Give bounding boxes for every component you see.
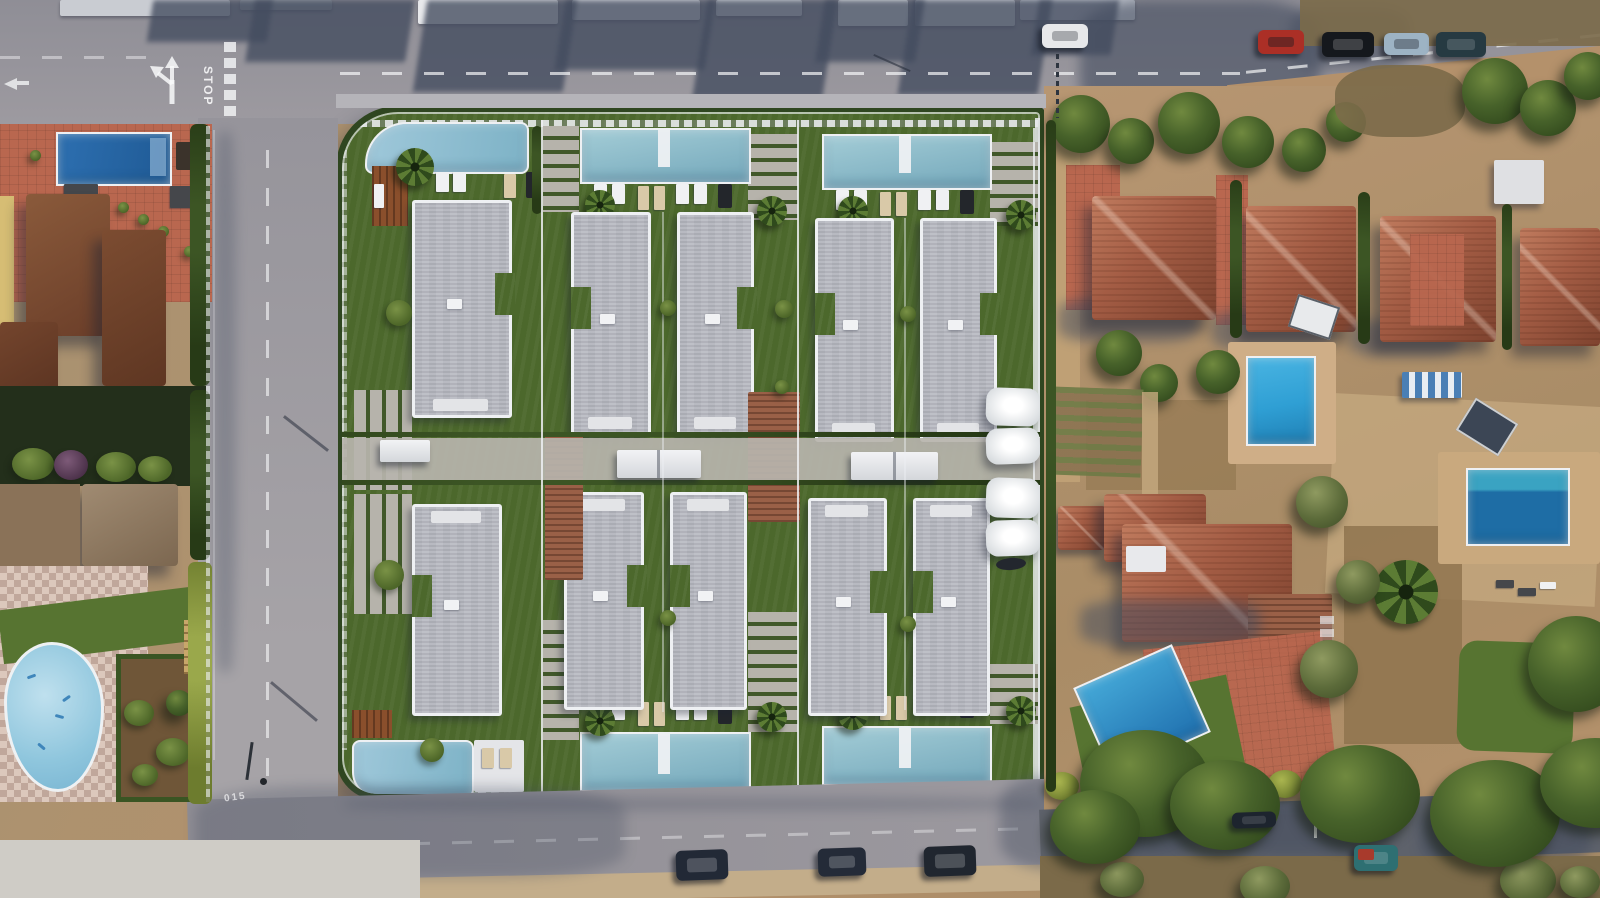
pool-divider-bridge xyxy=(899,726,911,768)
garden-bush xyxy=(660,300,676,316)
unit-divider-wall xyxy=(541,120,543,796)
timber-deck xyxy=(352,710,392,738)
roof-terrace xyxy=(687,499,729,511)
car-windshield xyxy=(1447,39,1475,50)
left-turn-arrow-marking xyxy=(4,78,17,90)
red-cargo xyxy=(1358,849,1374,860)
parked-car-silver xyxy=(1384,33,1429,55)
fence-line xyxy=(1056,54,1059,118)
villa-roof xyxy=(102,230,166,386)
pool-motif xyxy=(55,714,64,719)
garden-bush xyxy=(138,456,172,482)
sun-lounger xyxy=(1496,580,1514,588)
potted-plant xyxy=(138,214,149,225)
garden-bush xyxy=(374,560,404,590)
lane-dash-line xyxy=(0,56,150,59)
palm-tree xyxy=(585,706,615,736)
plot-bush xyxy=(132,764,158,786)
lamp-head xyxy=(260,778,267,785)
canopy-tree xyxy=(1300,745,1420,843)
big-palm xyxy=(1374,560,1438,624)
parked-car-dark xyxy=(675,849,728,881)
entrance-canopy xyxy=(617,450,701,478)
brush-tree xyxy=(1240,866,1290,898)
car-in-shade xyxy=(1232,811,1277,829)
plot-bush xyxy=(156,738,190,766)
townhouse-roof xyxy=(815,218,894,442)
sun-lounger xyxy=(453,172,466,192)
roof-notch xyxy=(870,571,890,613)
striped-awning xyxy=(1402,372,1462,398)
shed-roof xyxy=(1058,506,1106,550)
parked-car-teal xyxy=(1436,32,1486,57)
pool-motif xyxy=(37,742,46,750)
roof-terrace xyxy=(694,417,736,429)
garden-bush xyxy=(775,300,793,318)
building-shadow xyxy=(692,0,838,98)
sun-lounger xyxy=(654,186,665,210)
car-windshield xyxy=(1333,39,1362,50)
potted-plant xyxy=(118,202,129,213)
roadside-tree xyxy=(1222,116,1274,168)
outdoor-sofa xyxy=(374,184,384,208)
villa-roof xyxy=(26,194,110,336)
car-windshield xyxy=(1394,39,1419,49)
villa-roof xyxy=(1092,196,1216,320)
roof-vent xyxy=(600,314,615,324)
roof-notch xyxy=(815,293,835,335)
roof-notch xyxy=(571,287,591,329)
sun-lounger xyxy=(436,172,449,192)
sun-lounger xyxy=(694,184,707,204)
dirt-yard xyxy=(0,484,80,568)
car-windshield xyxy=(687,858,717,872)
roof-notch xyxy=(670,565,690,607)
roof-terrace xyxy=(930,505,972,517)
pool-divider-bridge xyxy=(899,134,911,173)
unit-divider-wall xyxy=(797,120,799,796)
roadside-tree xyxy=(1052,95,1110,153)
parked-object xyxy=(996,557,1027,571)
villa-terrace xyxy=(1410,234,1464,326)
building-shadow xyxy=(245,0,415,62)
roadside-tree xyxy=(1462,58,1528,124)
roof-vent xyxy=(444,600,459,610)
parked-car-dark xyxy=(923,845,976,877)
townhouse-roof xyxy=(808,498,887,716)
potted-plant xyxy=(30,150,41,161)
garden-bush xyxy=(420,738,444,762)
lane-fork-arrow-marking xyxy=(148,54,190,104)
white-terrace xyxy=(1126,546,1166,572)
sun-lounger xyxy=(482,748,494,768)
entrance-canopy xyxy=(380,440,430,462)
townhouse-roof xyxy=(412,200,512,418)
car-windshield xyxy=(1268,37,1294,48)
canopy-seam xyxy=(657,450,660,478)
villa-roof xyxy=(1520,228,1600,346)
olive-tree xyxy=(1336,560,1380,604)
roof-notch xyxy=(412,575,432,617)
building-shadow xyxy=(413,0,578,92)
palm-tree xyxy=(757,196,787,226)
garden-tree xyxy=(1096,330,1142,376)
sun-lounger xyxy=(504,174,516,198)
townhouse-development-block xyxy=(336,106,1046,800)
roof-vent xyxy=(948,320,963,330)
building-shadow xyxy=(554,0,715,70)
teal-vehicle xyxy=(1354,845,1398,871)
center-dash-line xyxy=(340,72,1240,75)
olive-tree xyxy=(1300,640,1358,698)
pool-steps xyxy=(150,138,166,176)
roof-vent xyxy=(593,591,608,601)
white-shed xyxy=(1494,160,1544,204)
brush-tree xyxy=(1100,862,1144,897)
pool-motif xyxy=(27,674,36,680)
sun-lounger xyxy=(936,190,949,210)
roof-vent xyxy=(705,314,720,324)
pool-divider-bridge xyxy=(658,732,670,774)
plot-bush xyxy=(124,700,154,726)
roof-notch xyxy=(737,287,757,329)
stop-road-marking: STOP xyxy=(201,66,215,106)
garden-bush xyxy=(775,380,789,394)
garden-bush xyxy=(900,616,916,632)
roof-vent xyxy=(836,597,851,607)
parked-car-white xyxy=(1042,24,1088,48)
palm-tree xyxy=(396,148,434,186)
sidewalk xyxy=(336,94,1046,108)
roof-terrace xyxy=(588,417,632,429)
dev-wall-shadow xyxy=(345,798,1045,810)
sun-lounger xyxy=(880,192,891,216)
sun-lounger xyxy=(500,748,512,768)
canopy-seam xyxy=(893,452,896,480)
canopy-tree xyxy=(1050,790,1140,864)
car-windshield xyxy=(1242,816,1267,824)
garden-bush xyxy=(386,300,412,326)
roof-terrace xyxy=(825,505,868,517)
palm-tree xyxy=(757,702,787,732)
villa-pool xyxy=(1246,356,1316,446)
shade-sail xyxy=(985,519,1040,557)
villa-roof xyxy=(82,484,178,566)
car-windshield xyxy=(935,854,965,868)
covered-pool xyxy=(1466,468,1570,546)
roof-vent xyxy=(447,299,462,309)
townhouse-roof xyxy=(913,498,990,716)
parked-car-red xyxy=(1258,30,1304,54)
roof-shadow xyxy=(1080,600,1260,646)
garden-bush xyxy=(54,450,88,480)
property-hedge xyxy=(1230,180,1242,338)
give-way-line xyxy=(224,42,236,120)
pale-pavement xyxy=(0,840,420,898)
roadside-tree xyxy=(1108,118,1154,164)
garden-tree xyxy=(1196,350,1240,394)
building-shadow xyxy=(897,0,1052,95)
townhouse-roof xyxy=(677,212,754,436)
roadside-tree xyxy=(1158,92,1220,154)
brush-tree xyxy=(1560,866,1600,898)
property-hedge xyxy=(1502,204,1512,350)
roof-notch xyxy=(495,273,515,315)
dry-brush xyxy=(1335,65,1465,137)
pool-divider-bridge xyxy=(658,128,670,167)
centre-hedge-line xyxy=(342,480,1042,485)
parked-car-black xyxy=(1322,32,1374,57)
roof-vent xyxy=(941,597,956,607)
roof-terrace xyxy=(581,499,625,511)
sun-lounger xyxy=(638,186,649,210)
townhouse-roof xyxy=(670,492,747,710)
garden-bush xyxy=(660,610,676,626)
unit-divider-wall xyxy=(662,212,664,712)
grass-paver-driveway xyxy=(354,494,412,614)
canopy-tree xyxy=(1170,760,1280,850)
roof-vent xyxy=(698,591,713,601)
parked-car-dark xyxy=(818,847,867,877)
centre-hedge-line xyxy=(342,432,1042,437)
hedge-shadow xyxy=(214,132,236,672)
property-hedge xyxy=(1358,192,1370,344)
unit-divider-wall xyxy=(904,218,906,710)
aerial-photo-scene: STOP 015 xyxy=(0,0,1600,898)
left-turn-arrow-stem xyxy=(17,81,29,85)
grass-paver-driveway xyxy=(543,126,579,212)
entrance-canopy xyxy=(851,452,938,480)
townhouse-roof xyxy=(412,504,502,716)
shade-sail xyxy=(985,387,1040,427)
garden-bush xyxy=(96,452,136,482)
palm-tree xyxy=(1006,696,1036,726)
sun-lounger xyxy=(676,184,689,204)
shade-sail xyxy=(985,477,1040,519)
garden-bush xyxy=(900,306,916,322)
olive-tree xyxy=(1296,476,1348,528)
outdoor-kitchen xyxy=(718,184,732,208)
car-windshield xyxy=(1052,31,1078,42)
dev-right-hedge xyxy=(1046,120,1056,792)
veg-garden xyxy=(1046,386,1143,477)
left-street-dashes xyxy=(266,150,269,780)
roof-notch xyxy=(980,293,1000,335)
sun-lounger xyxy=(1518,588,1536,596)
townhouse-roof xyxy=(571,212,651,436)
car-windshield xyxy=(828,855,855,868)
garden-bush xyxy=(12,448,54,480)
roof-notch xyxy=(913,571,933,613)
fence-posts xyxy=(206,126,210,802)
palm-tree xyxy=(1006,200,1036,230)
sun-lounger xyxy=(918,190,931,210)
sun-lounger xyxy=(1540,582,1556,589)
pool-motif xyxy=(62,695,71,703)
roof-notch xyxy=(627,565,647,607)
sun-lounger xyxy=(896,192,907,216)
roof-terrace xyxy=(433,399,488,411)
roadside-tree xyxy=(1282,128,1326,172)
roof-terrace xyxy=(431,511,481,523)
roof-vent xyxy=(843,320,858,330)
shade-sail xyxy=(985,427,1040,465)
outdoor-kitchen xyxy=(960,190,974,214)
